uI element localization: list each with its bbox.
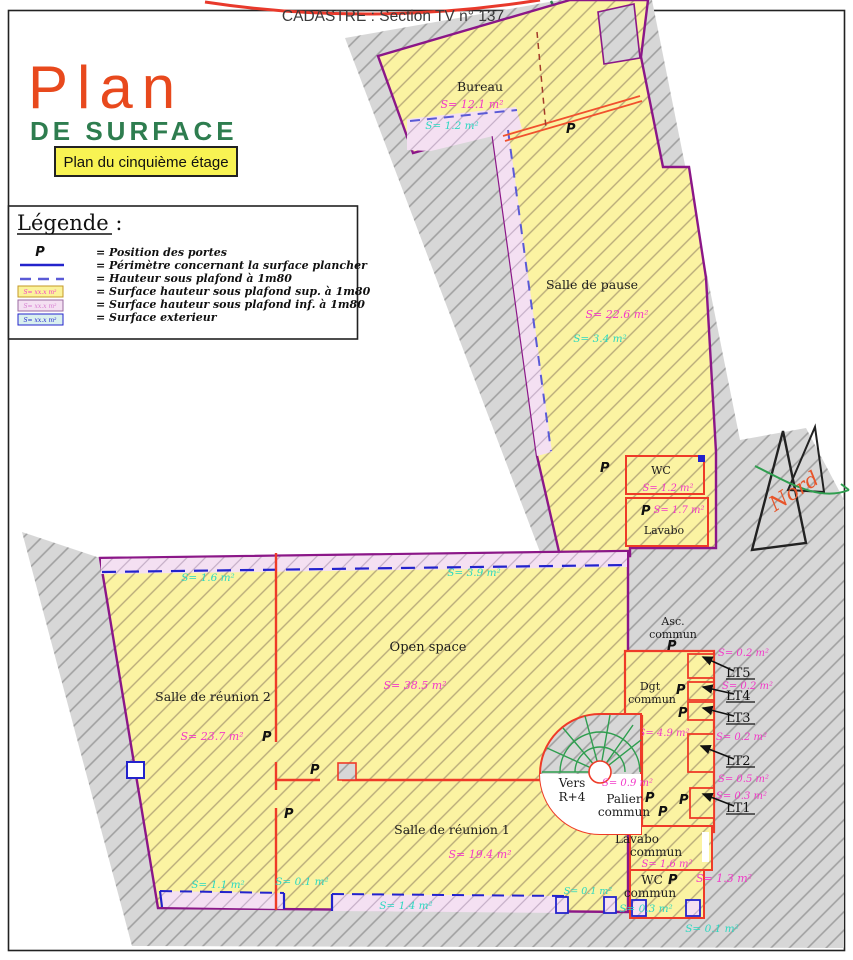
legend-swatch-cyan-text: S= xx.x m²	[23, 317, 57, 324]
floor-badge-label: Plan du cinquième étage	[63, 154, 228, 171]
door-marker: P	[678, 706, 688, 721]
legend-item: = Surface hauteur sous plafond sup. à 1m…	[96, 285, 371, 298]
door-marker: P	[658, 805, 668, 820]
bottom-pink-strip-mid	[332, 894, 566, 913]
stairs-label: R+4	[559, 790, 586, 804]
room-label: Asc.	[660, 615, 684, 628]
room-label: commun	[598, 805, 650, 819]
room-label: Bureau	[457, 79, 503, 94]
surface-ext-value: S= 0.1 m²	[275, 876, 329, 888]
door-marker: P	[284, 807, 294, 822]
room-label: commun	[624, 886, 676, 900]
legend-item: = Position des portes	[96, 246, 227, 259]
room-lt2	[688, 734, 714, 772]
surface-value: S= 0.2 m²	[718, 648, 769, 659]
room-lt5	[688, 654, 714, 678]
surface-value: S= 0.9 m²	[602, 778, 653, 789]
surface-value: S= 1.2 m²	[643, 483, 694, 494]
room-lt1	[690, 788, 714, 818]
door-marker: P	[676, 683, 686, 698]
room-label: Open space	[390, 640, 467, 655]
room-label: Salle de réunion 2	[155, 689, 271, 704]
room-label: Lavabo	[644, 524, 685, 537]
room-lt3	[688, 702, 714, 720]
surface-ext-value: S= 1.2 m²	[425, 120, 479, 132]
surface-value: S= 23.7 m²	[180, 730, 243, 743]
surface-value: S= 0.2 m²	[716, 732, 767, 743]
pink-notch	[556, 897, 568, 913]
main-block-outline	[100, 551, 628, 912]
door-marker: P	[667, 639, 677, 654]
surface-ext-value: S= 1.6 m²	[181, 572, 235, 584]
surface-value: S= 38.5 m²	[383, 679, 446, 692]
wall-gray-notch	[338, 763, 356, 780]
surface-ext-value: S= 0.3 m²	[619, 903, 673, 915]
surface-value: S= 1.6 m²	[642, 859, 693, 870]
room-lt4	[688, 682, 714, 700]
door-marker: P	[679, 793, 689, 808]
room-label: Dgt	[640, 680, 661, 693]
legend-item: = Surface exterieur	[96, 311, 218, 324]
main-block: Salle de réunion 2 S= 23.7 m² S= 1.6 m² …	[100, 551, 628, 913]
floor-plan-drawing: CADASTRE : Section TV n° 137 Plan DE SUR…	[0, 0, 853, 960]
bureau-notch	[598, 4, 640, 64]
room-label: WC	[641, 873, 663, 887]
surface-value: S= 1.3 m²	[696, 872, 752, 885]
surface-ext-value: S= 0.1 m²	[564, 886, 613, 897]
page-title: Plan	[28, 54, 184, 121]
surface-value: S= 1.7 m²	[654, 505, 705, 516]
room-label: commun	[630, 845, 682, 859]
door-marker: P	[310, 763, 320, 778]
legend-item: = Périmètre concernant la surface planch…	[96, 259, 368, 272]
legend-door-symbol: P	[35, 245, 45, 260]
spiral-staircase: Vers R+4 S= 0.9 m² Palier commun	[540, 714, 653, 834]
legend-swatch-yellow-text: S= xx.x m²	[23, 289, 57, 296]
door-marker: P	[566, 122, 576, 137]
legend-title: Légende :	[17, 211, 122, 235]
door-marker: P	[645, 791, 655, 806]
pink-notch	[604, 897, 616, 913]
floor-plan-page: CADASTRE : Section TV n° 137 Plan DE SUR…	[0, 0, 853, 960]
room-label: Salle de réunion 1	[394, 822, 510, 837]
surface-value: S= 19.4 m²	[448, 848, 511, 861]
room-label: Salle de pause	[546, 277, 638, 292]
legend: Légende : P S= xx.x m² S= xx.x m² S= xx.…	[9, 206, 371, 339]
surface-ext-value: S= 1.4 m²	[379, 900, 433, 912]
legend-swatch-pink-text: S= xx.x m²	[23, 303, 57, 310]
room-label: Palier	[606, 792, 641, 806]
room-label: commun	[628, 693, 676, 706]
surface-value: S= 4.9 m²	[639, 728, 690, 739]
surface-ext-value: S= 1.1 m²	[191, 879, 245, 891]
wc-blue-marker	[698, 455, 705, 462]
page-subtitle: DE SURFACE	[30, 116, 238, 146]
room-label: WC	[651, 464, 671, 477]
surface-ext-value: S= 3.4 m²	[573, 333, 627, 345]
door-marker: P	[600, 461, 610, 476]
door-marker: P	[668, 873, 678, 888]
surface-value: S= 0.5 m²	[718, 774, 769, 785]
door-marker: P	[641, 504, 651, 519]
surface-ext-value: S= 3.9 m²	[447, 567, 501, 579]
wall-notch	[127, 762, 144, 778]
legend-item: = Surface hauteur sous plafond inf. à 1m…	[96, 298, 365, 311]
stairs-label: Vers	[558, 776, 586, 790]
surface-value: S= 22.6 m²	[585, 308, 648, 321]
surface-value: S= 12.1 m²	[440, 98, 503, 111]
lavabo-commun-door-gap	[702, 832, 709, 862]
door-marker: P	[262, 730, 272, 745]
legend-item: = Hauteur sous plafond à 1m80	[96, 272, 292, 285]
cadastre-title: CADASTRE : Section TV n° 137	[282, 8, 504, 25]
pink-notch	[686, 900, 700, 916]
surface-ext-value: S= 0.1 m²	[685, 923, 739, 935]
